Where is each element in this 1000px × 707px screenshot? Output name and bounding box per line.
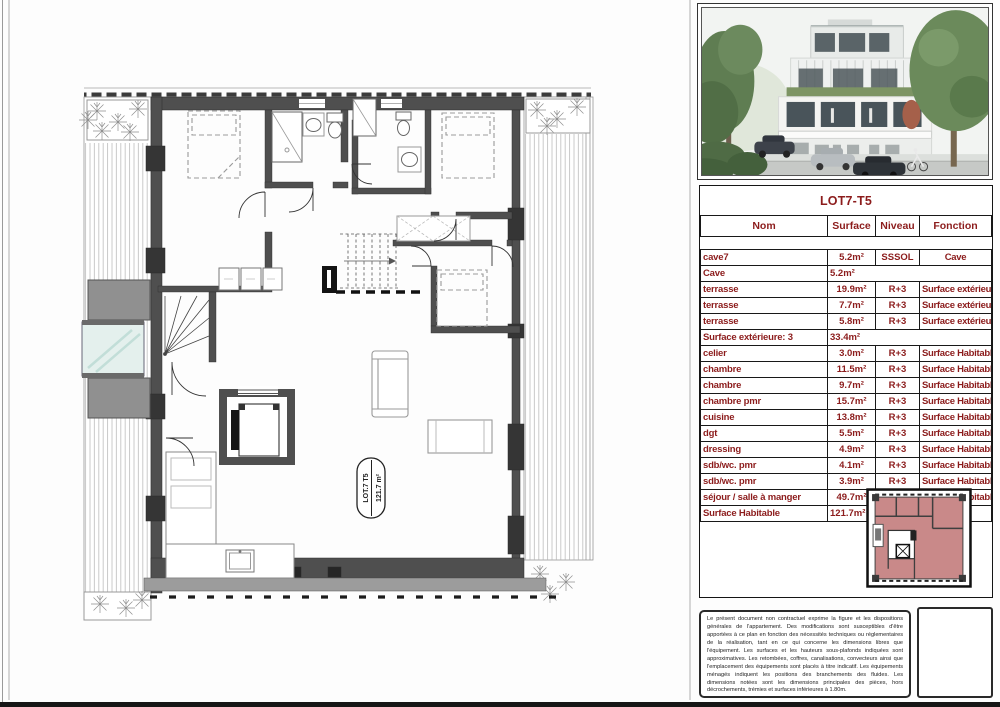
table-row: terrasse 7.7m² R+3 Surface extérieure [701,298,992,314]
table-row: dgt 5.5m² R+3 Surface Habitable [701,426,992,442]
col-niveau: Niveau [876,216,920,237]
empty-side-box [917,607,993,698]
surface-table-box: LOT7-T5 Nom Surface Niveau Fonction cave… [699,185,993,598]
table-row: sdb/wc. pmr 4.1m² R+3 Surface Habitable [701,458,992,474]
col-fonction: Fonction [920,216,992,237]
closet-shelves [219,268,282,290]
building-photo-frame [697,3,993,180]
table-row: dressing 4.9m² R+3 Surface Habitable [701,442,992,458]
building-rendering [702,8,988,175]
kitchen-counters [166,452,294,578]
rust-shrub [902,100,920,129]
sofa [372,351,408,417]
page: LOT.7 T5 121.7 m² [0,0,1000,707]
terrace-right [524,97,593,603]
col-surface: Surface [828,216,876,237]
table-header-row: Nom Surface Niveau Fonction [701,216,992,237]
table-row: chambre 11.5m² R+3 Surface Habitable [701,362,992,378]
table-row: cuisine 13.8m² R+3 Surface Habitable [701,410,992,426]
top-railing [84,88,591,97]
surface-table: Nom Surface Niveau Fonction cave7 5.2m² … [700,215,992,522]
table-row: terrasse 5.8m² R+3 Surface extérieure [701,314,992,330]
table-summary-row: Cave 5.2m² [701,266,992,282]
legal-text: Le présent document non contractuel expr… [707,616,903,695]
elevator [223,386,291,461]
table-row: terrasse 19.9m² R+3 Surface extérieure [701,282,992,298]
table-title: LOT7-T5 [700,186,992,215]
floor-plan-drawing: LOT.7 T5 121.7 m² [0,0,695,702]
coffee-table [428,420,492,453]
building-photo [701,7,989,176]
table-row: cave7 5.2m² SSSOL Cave [701,250,992,266]
col-nom: Nom [701,216,828,237]
duct-column [322,266,337,293]
mini-plan-drawing [866,488,972,588]
roof-hedge [787,87,920,96]
table-row: celier 3.0m² R+3 Surface Habitable [701,346,992,362]
table-summary-row: Surface extérieure: 3 33.4m² [701,330,992,346]
lot-label-line2: 121.7 m² [376,473,383,502]
table-row: chambre 9.7m² R+3 Surface Habitable [701,378,992,394]
left-window [82,280,150,418]
spacer-row [701,237,992,250]
table-row: chambre pmr 15.7m² R+3 Surface Habitable [701,394,992,410]
legal-disclaimer: Le présent document non contractuel expr… [699,610,911,698]
lot-label-line1: LOT.7 T5 [363,473,370,502]
stair-arrow-head [389,258,396,265]
lot-label: LOT.7 T5 121.7 m² [357,458,385,518]
staircase [164,296,210,356]
mini-plan-thumbnail [866,488,972,588]
wardrobe [397,216,470,241]
